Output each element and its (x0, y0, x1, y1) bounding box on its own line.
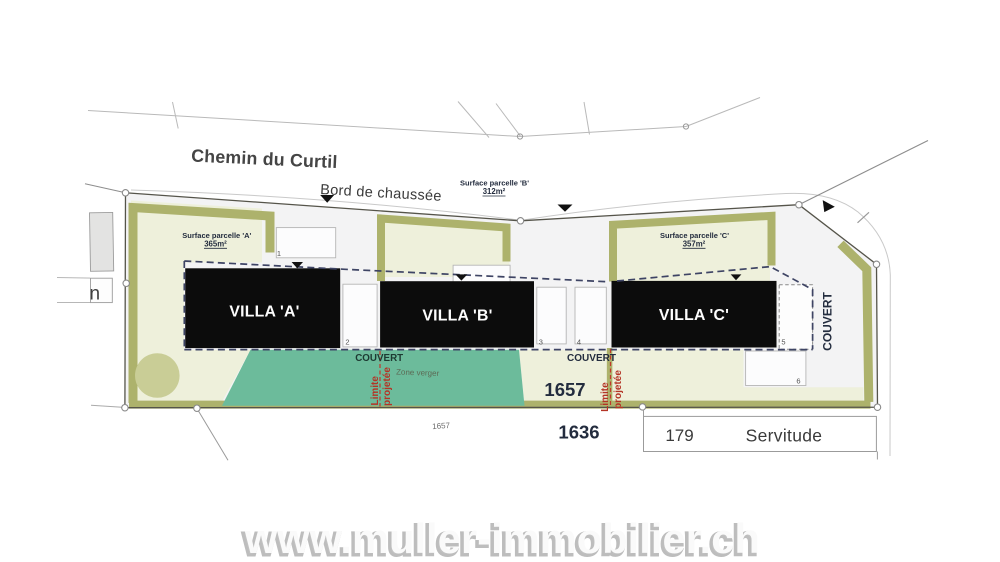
svg-text:VILLA 'C': VILLA 'C' (659, 307, 729, 324)
svg-text:VILLA 'A': VILLA 'A' (229, 304, 299, 321)
svg-text:VILLA 'B': VILLA 'B' (422, 307, 492, 324)
svg-text:1657: 1657 (544, 379, 585, 400)
svg-text:179: 179 (665, 426, 693, 445)
svg-text:3: 3 (539, 337, 543, 346)
svg-text:projetée: projetée (613, 370, 624, 409)
svg-text:6: 6 (796, 377, 800, 386)
svg-text:COUVERT: COUVERT (567, 353, 616, 364)
svg-text:1: 1 (277, 249, 281, 258)
svg-text:Limite: Limite (600, 382, 611, 412)
svg-text:www.muller-immobilier.ch: www.muller-immobilier.ch (244, 515, 760, 562)
svg-text:Zone verger: Zone verger (396, 368, 440, 379)
svg-text:1657: 1657 (432, 421, 451, 431)
svg-text:5: 5 (781, 338, 785, 347)
svg-text:312m²: 312m² (483, 187, 506, 196)
svg-text:357m²: 357m² (683, 240, 706, 249)
svg-text:4: 4 (577, 337, 581, 346)
svg-text:1636: 1636 (558, 422, 599, 443)
svg-text:Servitude: Servitude (746, 426, 823, 446)
svg-text:n: n (90, 284, 101, 305)
svg-text:projetée: projetée (382, 367, 393, 406)
svg-text:COUVERT: COUVERT (821, 291, 835, 350)
svg-text:COUVERT: COUVERT (355, 353, 403, 364)
svg-text:Limite: Limite (370, 376, 381, 406)
svg-text:365m²: 365m² (204, 240, 227, 249)
svg-text:2: 2 (345, 337, 349, 346)
